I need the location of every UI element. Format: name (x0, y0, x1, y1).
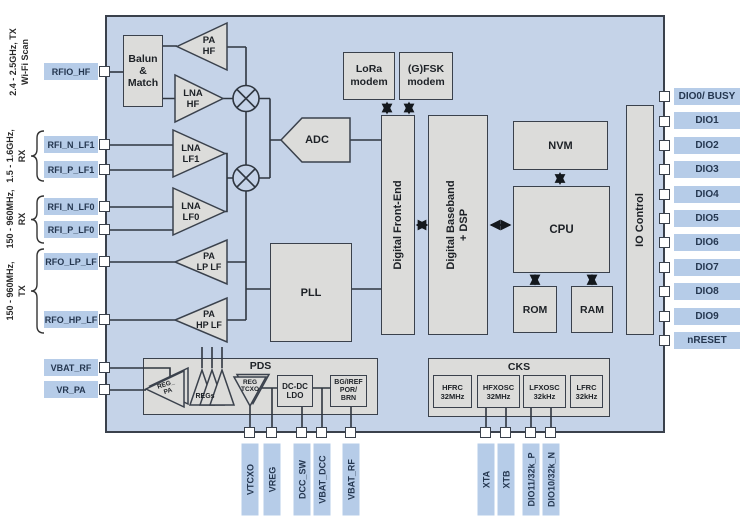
pin-label-xtb: XTB (498, 444, 515, 516)
band-label-lf0-tx: 150 - 960MHz, TX (5, 250, 29, 332)
pin-pad (500, 427, 511, 438)
rom-block: ROM (513, 286, 557, 333)
pin-pad (659, 237, 670, 248)
pin-label-rfi-p-lf0: RFI_P_LF0 (44, 221, 98, 238)
pin-label-dio0-busy: DIO0/ BUSY (674, 88, 740, 105)
pin-label-nreset: nRESET (674, 332, 740, 349)
pin-pad (99, 256, 110, 267)
pin-pad (296, 427, 307, 438)
pin-pad (316, 427, 327, 438)
lora-modem-block: LoRa modem (343, 52, 395, 100)
pin-pad (99, 201, 110, 212)
pin-pad (99, 384, 110, 395)
pin-pad (99, 164, 110, 175)
pin-pad (659, 164, 670, 175)
group-brace (31, 131, 44, 333)
pin-pad (266, 427, 277, 438)
io-control-label: IO Control (633, 110, 647, 330)
pin-label-vbat-rf-bottom: VBAT_RF (343, 444, 360, 516)
band-label-lf0-rx: 150 - 960MHz, RX (5, 178, 29, 260)
gfsk-modem-block: (G)FSK modem (399, 52, 453, 100)
pin-pad (480, 427, 491, 438)
pin-pad (99, 139, 110, 150)
pin-pad (659, 116, 670, 127)
pin-label-dio9: DIO9 (674, 308, 740, 325)
band-label-hf: 2.4 - 2.5GHz, TX Wi-Fi Scan (8, 7, 32, 117)
pin-pad (345, 427, 356, 438)
pin-pad (525, 427, 536, 438)
pin-label-vbat-dcc: VBAT_DCC (314, 444, 331, 516)
pin-label-dcc-sw: DCC_SW (294, 444, 311, 516)
pin-pad (99, 362, 110, 373)
pin-pad (659, 213, 670, 224)
pin-label-vtcxo: VTCXO (242, 444, 259, 516)
pin-pad (99, 314, 110, 325)
pin-label-rfio-hf: RFIO_HF (44, 63, 98, 80)
pin-label-dio7: DIO7 (674, 259, 740, 276)
lna-lf1-label: LNA LF1 (175, 139, 207, 169)
pin-pad (659, 91, 670, 102)
pin-pad (659, 311, 670, 322)
pin-label-vreg: VREG (264, 444, 281, 516)
pin-pad (659, 262, 670, 273)
pa-hf-label: PA HF (193, 31, 225, 61)
reg-tcxo-label: REG TCXO (236, 378, 264, 393)
ram-block: RAM (571, 286, 613, 333)
pin-label-rfi-n-lf1: RFI_N_LF1 (44, 136, 98, 153)
pa-lp-lf-label: PA LP LF (193, 247, 225, 277)
pin-pad (99, 66, 110, 77)
pin-label-dio8: DIO8 (674, 283, 740, 300)
cks-title: CKS (428, 361, 610, 373)
digital-front-end-label: Digital Front-End (390, 115, 406, 335)
pin-label-dio5: DIO5 (674, 210, 740, 227)
pin-pad (244, 427, 255, 438)
pin-label-rfo-lp-lf: RFO_LP_LF (44, 253, 98, 270)
regs-label: REGs (190, 391, 220, 401)
pin-label-dio3: DIO3 (674, 161, 740, 178)
bg-iref-por-brn-block: BG/IREF POR/ BRN (330, 375, 367, 407)
balun-match-block: Balun & Match (123, 35, 163, 107)
hfrc-block: HFRC 32MHz (433, 375, 472, 408)
adc-label: ADC (290, 129, 344, 151)
pin-label-rfo-hp-lf: RFO_HP_LF (44, 311, 98, 328)
lna-lf0-label: LNA LF0 (175, 197, 207, 227)
pin-label-dio2: DIO2 (674, 137, 740, 154)
lfrc-block: LFRC 32kHz (570, 375, 603, 408)
pll-block: PLL (270, 243, 352, 342)
pin-pad (545, 427, 556, 438)
pin-pad (659, 189, 670, 200)
hfxosc-block: HFXOSC 32MHz (477, 375, 520, 408)
pin-pad (659, 286, 670, 297)
lna-hf-label: LNA HF (177, 84, 209, 114)
pin-pad (99, 224, 110, 235)
soc-block-diagram: Balun & Match LoRa modem (G)FSK modem PL… (0, 0, 748, 526)
pin-label-dio6: DIO6 (674, 234, 740, 251)
pa-hp-lf-label: PA HP LF (193, 305, 225, 335)
pin-label-vr-pa: VR_PA (44, 381, 98, 398)
pin-label-dio1: DIO1 (674, 112, 740, 129)
pin-label-dio11-32k-p: DIO11/32k_P (523, 444, 540, 516)
pin-label-dio4: DIO4 (674, 186, 740, 203)
pin-label-rfi-n-lf0: RFI_N_LF0 (44, 198, 98, 215)
pin-pad (659, 335, 670, 346)
pin-pad (659, 140, 670, 151)
pin-label-dio10-32k-n: DIO10/32k_N (543, 444, 560, 516)
pds-title: PDS (143, 360, 378, 372)
nvm-block: NVM (513, 121, 608, 170)
dcdc-ldo-block: DC-DC LDO (277, 375, 313, 407)
digital-baseband-label: Digital Baseband + DSP (445, 115, 471, 335)
cpu-block: CPU (513, 186, 610, 273)
pin-label-xta: XTA (478, 444, 495, 516)
lfxosc-block: LFXOSC 32kHz (523, 375, 566, 408)
pin-label-rfi-p-lf1: RFI_P_LF1 (44, 161, 98, 178)
pin-label-vbat-rf-left: VBAT_RF (44, 359, 98, 376)
